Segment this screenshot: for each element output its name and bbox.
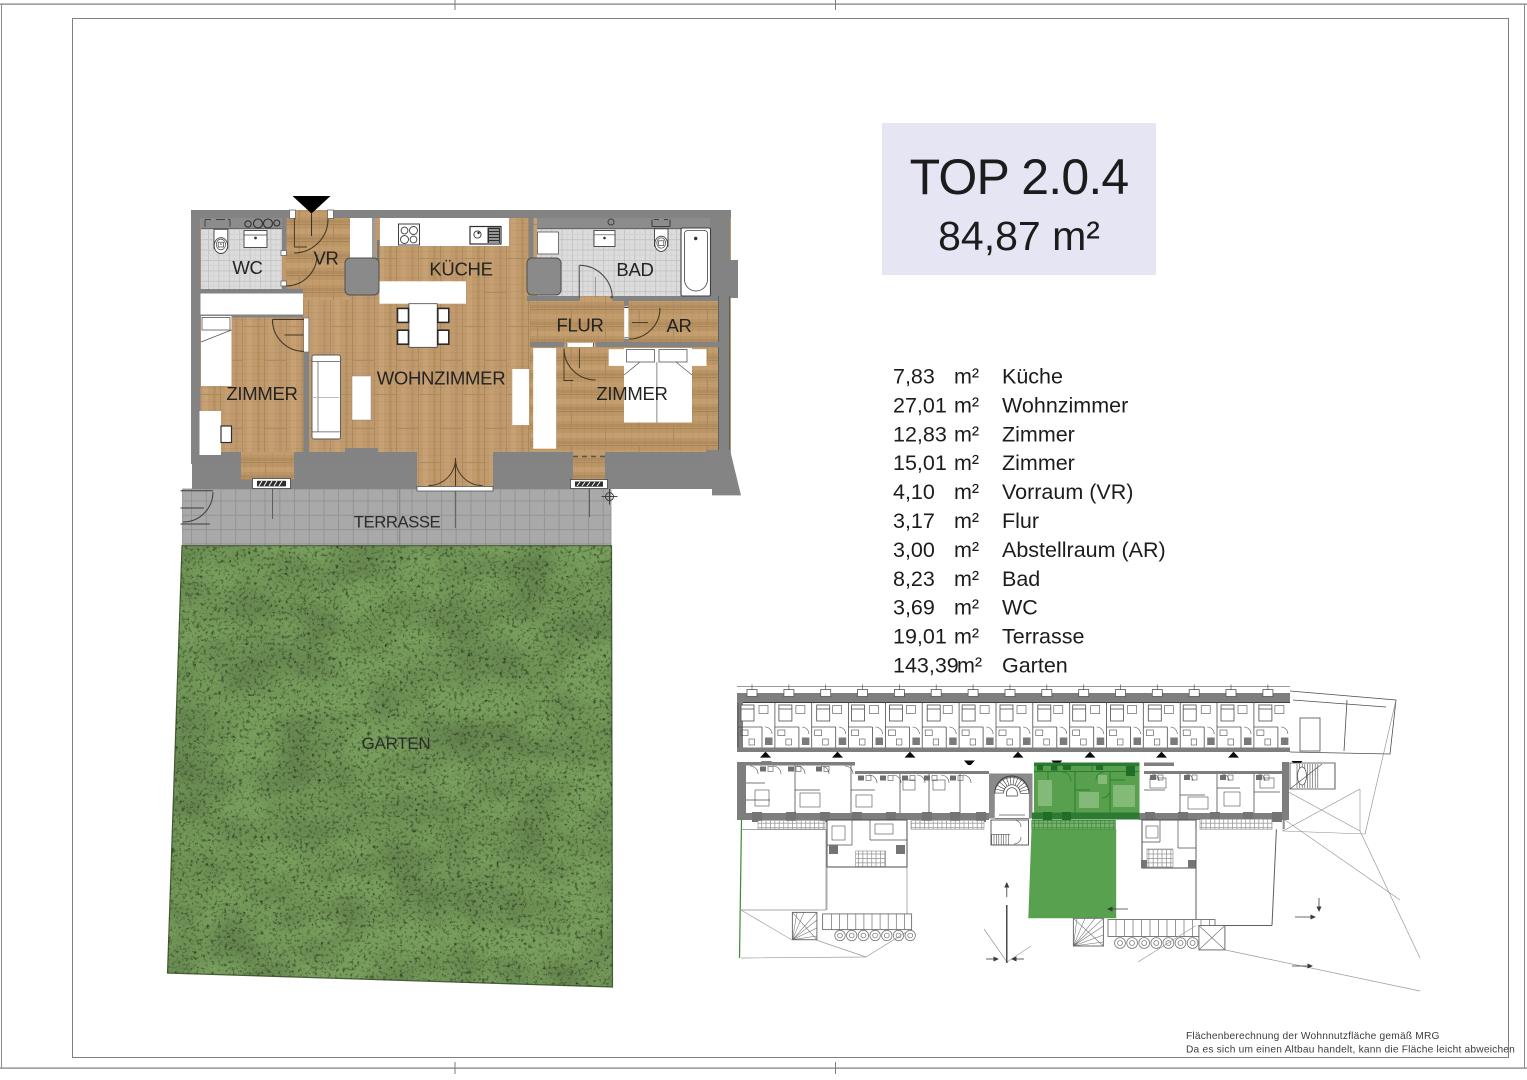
- svg-text:4,10m²Vorraum (VR): 4,10m²Vorraum (VR): [893, 480, 1133, 504]
- svg-text:BAD: BAD: [616, 259, 653, 280]
- svg-text:TOP 2.0.4: TOP 2.0.4: [910, 149, 1129, 205]
- svg-text:3,17m²Flur: 3,17m²Flur: [893, 509, 1039, 533]
- svg-text:Flächenberechnung der Wohnnutz: Flächenberechnung der Wohnnutzfläche gem…: [1186, 1031, 1440, 1042]
- svg-text:ZIMMER: ZIMMER: [596, 383, 667, 404]
- svg-text:VR: VR: [313, 248, 338, 269]
- svg-text:GARTEN: GARTEN: [362, 734, 431, 753]
- svg-text:84,87 m²: 84,87 m²: [938, 213, 1100, 259]
- svg-text:27,01m²Wohnzimmer: 27,01m²Wohnzimmer: [893, 393, 1128, 417]
- svg-text:WOHNZIMMER: WOHNZIMMER: [377, 368, 506, 389]
- svg-text:TERRASSE: TERRASSE: [354, 513, 441, 532]
- svg-text:8,23m²Bad: 8,23m²Bad: [893, 567, 1040, 591]
- svg-text:3,69m²WC: 3,69m²WC: [893, 596, 1038, 620]
- svg-text:Da es sich um einen Altbau han: Da es sich um einen Altbau handelt, kann…: [1186, 1045, 1515, 1056]
- svg-text:7,83m²Küche: 7,83m²Küche: [893, 365, 1063, 389]
- svg-text:AR: AR: [666, 315, 691, 336]
- svg-text:143,39m²Garten: 143,39m²Garten: [893, 654, 1068, 678]
- svg-text:KÜCHE: KÜCHE: [429, 259, 492, 280]
- svg-text:WC: WC: [232, 257, 262, 278]
- svg-text:ZIMMER: ZIMMER: [226, 383, 297, 404]
- svg-text:3,00m²Abstellraum (AR): 3,00m²Abstellraum (AR): [893, 538, 1166, 562]
- svg-text:FLUR: FLUR: [556, 315, 603, 336]
